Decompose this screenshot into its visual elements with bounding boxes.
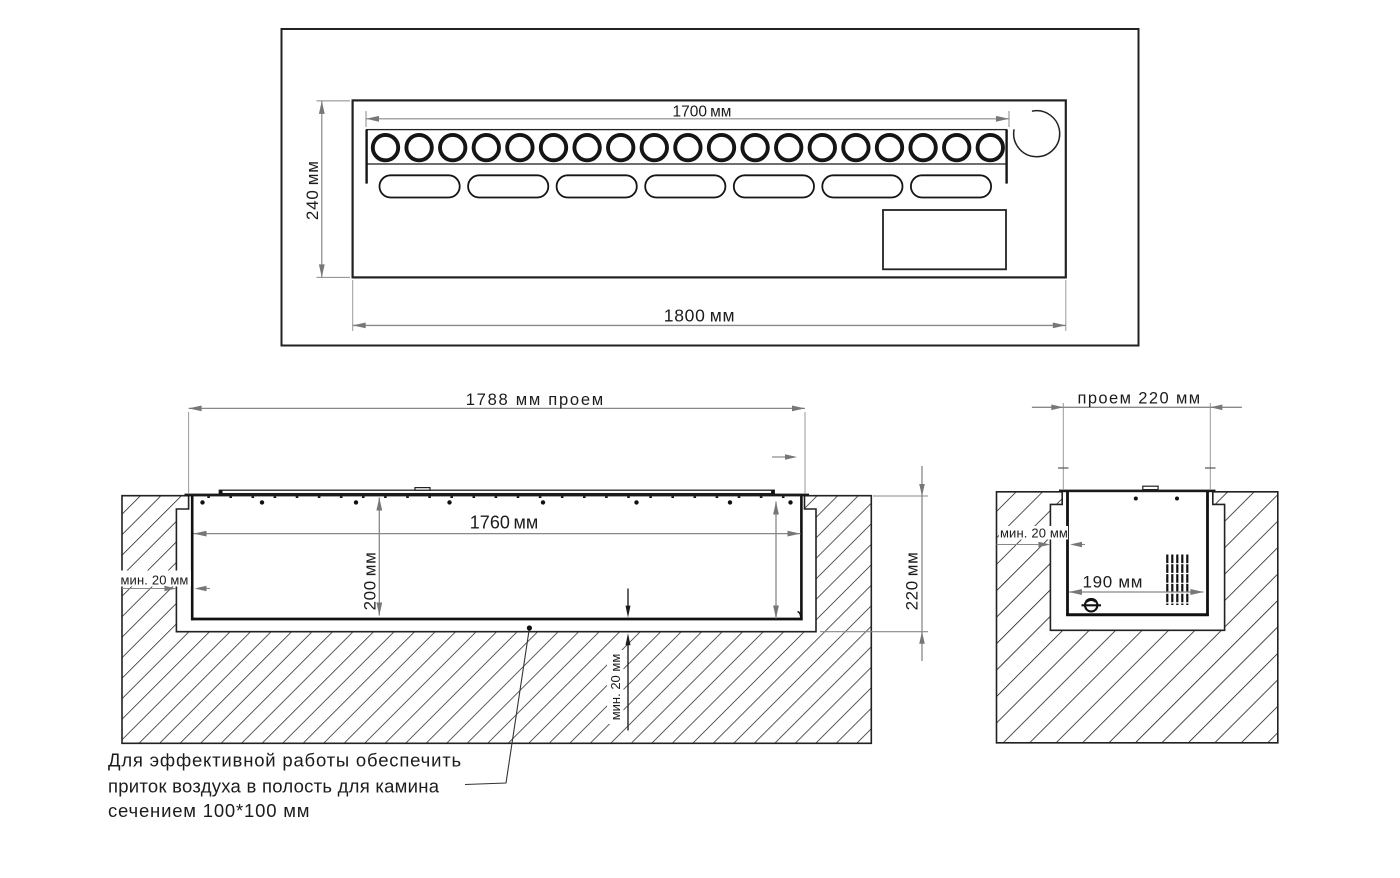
svg-text:сечением 100*100 мм: сечением 100*100 мм [108, 800, 310, 821]
svg-text:мин. 20 мм: мин. 20 мм [120, 573, 188, 588]
svg-text:220 мм: 220 мм [903, 552, 922, 611]
svg-text:1788 мм проем: 1788 мм проем [466, 390, 605, 409]
svg-text:мин. 20 мм: мин. 20 мм [1000, 526, 1068, 541]
svg-text:Для эффективной работы обеспеч: Для эффективной работы обеспечить [108, 750, 462, 771]
svg-text:1800 мм: 1800 мм [664, 306, 735, 326]
svg-text:мин. 20 мм: мин. 20 мм [608, 654, 623, 721]
svg-text:проем 220 мм: проем 220 мм [1078, 389, 1202, 407]
svg-text:190 мм: 190 мм [1082, 573, 1143, 592]
svg-text:240 мм: 240 мм [303, 160, 322, 220]
svg-text:приток воздуха в полость для к: приток воздуха в полость для камина [108, 776, 440, 797]
svg-text:200 мм: 200 мм [361, 552, 380, 611]
svg-text:1760 мм: 1760 мм [470, 513, 538, 533]
svg-text:1700 мм: 1700 мм [673, 104, 732, 121]
